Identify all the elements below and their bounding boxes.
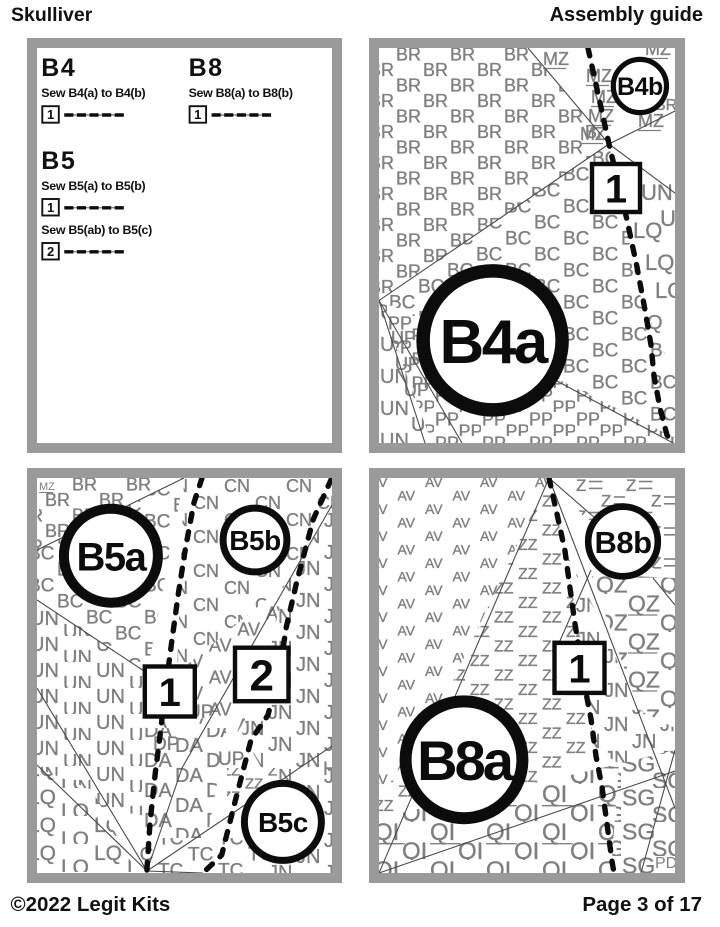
svg-text:B5: B5 bbox=[41, 147, 76, 175]
svg-text:B8b: B8b bbox=[594, 525, 651, 560]
svg-text:B5a: B5a bbox=[76, 535, 147, 579]
svg-text:B4b: B4b bbox=[617, 73, 663, 101]
svg-text:B5b: B5b bbox=[229, 525, 280, 556]
svg-text:1: 1 bbox=[47, 200, 54, 215]
svg-text:1: 1 bbox=[159, 671, 181, 715]
svg-text:Sew B5(ab) to B5(c): Sew B5(ab) to B5(c) bbox=[41, 223, 152, 237]
svg-text:UP: UP bbox=[391, 328, 416, 348]
svg-text:B8: B8 bbox=[189, 54, 224, 82]
svg-text:B4a: B4a bbox=[439, 308, 548, 377]
svg-text:MZ: MZ bbox=[580, 124, 606, 144]
svg-text:UN: UN bbox=[641, 180, 673, 205]
svg-text:PD: PD bbox=[655, 855, 675, 872]
svg-text:Sew B4(a) to B4(b): Sew B4(a) to B4(b) bbox=[41, 86, 145, 100]
svg-text:Sew B5(a) to B5(b): Sew B5(a) to B5(b) bbox=[41, 179, 145, 193]
svg-text:1: 1 bbox=[47, 107, 54, 122]
svg-text:UP: UP bbox=[218, 749, 244, 770]
svg-text:1: 1 bbox=[568, 647, 590, 691]
svg-text:MZ: MZ bbox=[39, 481, 55, 493]
svg-text:LQ: LQ bbox=[655, 278, 675, 303]
svg-text:LQ: LQ bbox=[633, 218, 662, 243]
svg-text:1: 1 bbox=[605, 167, 627, 211]
svg-text:2: 2 bbox=[47, 244, 54, 259]
svg-text:2: 2 bbox=[250, 651, 274, 700]
svg-text:MZ: MZ bbox=[543, 49, 569, 69]
svg-text:B8a: B8a bbox=[417, 729, 515, 792]
svg-text:1: 1 bbox=[194, 107, 201, 122]
svg-text:H: H bbox=[323, 759, 332, 780]
svg-text:LQ: LQ bbox=[645, 250, 674, 275]
svg-text:B4: B4 bbox=[41, 54, 76, 82]
svg-text:MZ: MZ bbox=[645, 48, 671, 59]
svg-text:Sew B8(a) to B8(b): Sew B8(a) to B8(b) bbox=[189, 86, 293, 100]
svg-text:B5c: B5c bbox=[258, 807, 308, 838]
